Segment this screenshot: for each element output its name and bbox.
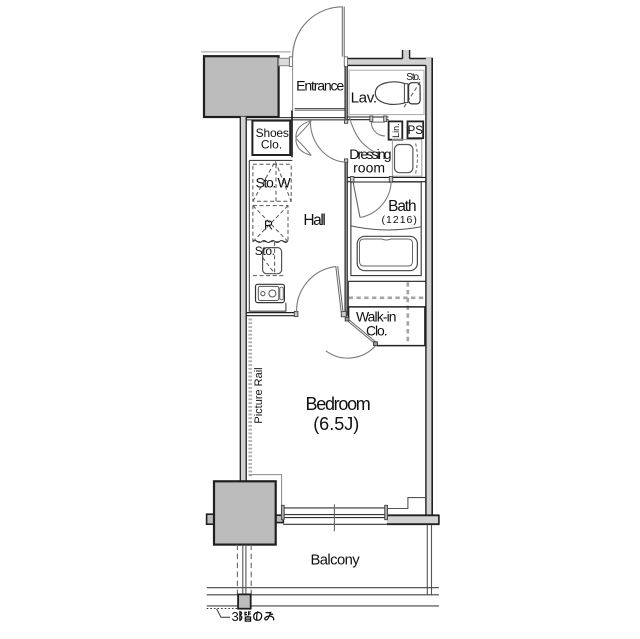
svg-text:Clo.: Clo. bbox=[261, 138, 282, 152]
svg-text:Lin.: Lin. bbox=[391, 123, 401, 138]
svg-text:Lav.: Lav. bbox=[351, 90, 377, 107]
svg-text:Sto. W: Sto. W bbox=[256, 175, 292, 191]
svg-text:Balcony: Balcony bbox=[310, 552, 360, 568]
svg-text:R: R bbox=[264, 219, 273, 233]
svg-text:Entrance: Entrance bbox=[296, 78, 344, 94]
svg-text:(1216): (1216) bbox=[382, 214, 418, 226]
svg-text:Hall: Hall bbox=[303, 212, 325, 229]
svg-text:Picture Rail: Picture Rail bbox=[253, 367, 265, 423]
svg-text:(6.5J): (6.5J) bbox=[313, 414, 359, 434]
svg-text:Bath: Bath bbox=[388, 198, 416, 215]
svg-text:PS: PS bbox=[408, 125, 424, 137]
svg-text:Bedroom: Bedroom bbox=[306, 394, 370, 414]
svg-text:3: 3 bbox=[232, 609, 239, 624]
svg-text:room: room bbox=[353, 159, 385, 175]
svg-text:Sto.: Sto. bbox=[255, 244, 275, 258]
svg-text:Sto.: Sto. bbox=[406, 72, 420, 83]
